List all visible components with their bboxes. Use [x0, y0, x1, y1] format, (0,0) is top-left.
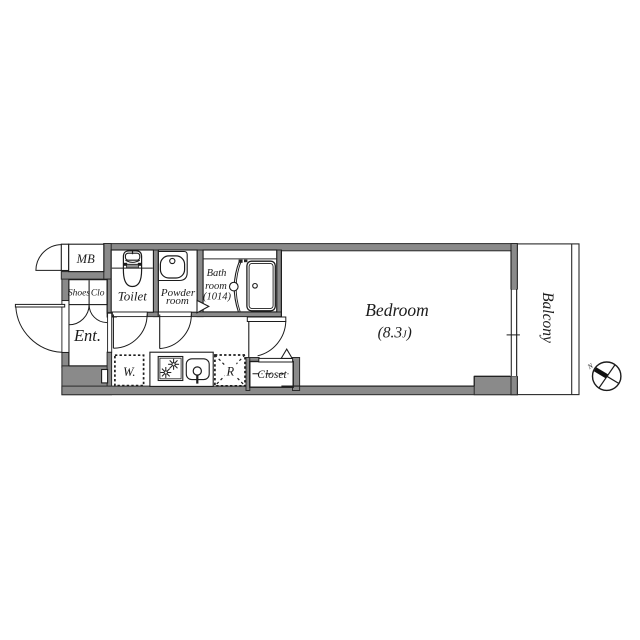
- svg-text:Clo: Clo: [91, 289, 105, 299]
- svg-text:Bath: Bath: [207, 268, 227, 279]
- svg-text:room: room: [205, 281, 227, 292]
- svg-text:Ent.: Ent.: [73, 326, 101, 345]
- svg-text:R: R: [225, 364, 234, 378]
- svg-text:(1014): (1014): [203, 292, 231, 303]
- svg-text:W.: W.: [123, 365, 135, 379]
- svg-text:Toilet: Toilet: [118, 288, 148, 303]
- svg-text:room: room: [166, 295, 189, 307]
- svg-text:Bedroom: Bedroom: [365, 300, 429, 320]
- svg-text:Closet: Closet: [257, 369, 287, 381]
- svg-text:Balcony: Balcony: [539, 292, 556, 343]
- svg-text:(8.3J): (8.3J): [378, 325, 412, 342]
- svg-text:Shoes: Shoes: [68, 289, 90, 299]
- svg-text:MB: MB: [76, 252, 95, 266]
